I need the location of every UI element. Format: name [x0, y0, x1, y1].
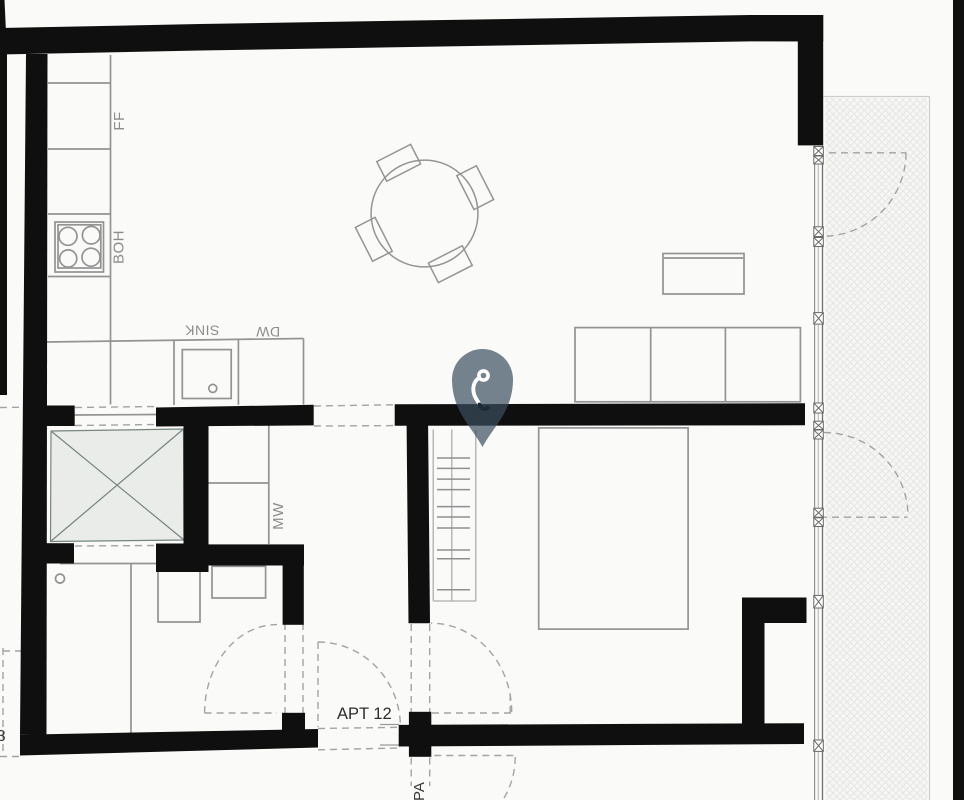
svg-text:FF: FF	[111, 111, 128, 130]
svg-text:SINK: SINK	[185, 323, 220, 339]
svg-text:DW: DW	[256, 324, 281, 340]
svg-text:PA: PA	[411, 782, 428, 800]
svg-text:MW: MW	[270, 502, 287, 530]
svg-text:BOH: BOH	[111, 230, 128, 264]
svg-text:APT 12: APT 12	[337, 705, 392, 723]
svg-text:3: 3	[0, 728, 6, 745]
